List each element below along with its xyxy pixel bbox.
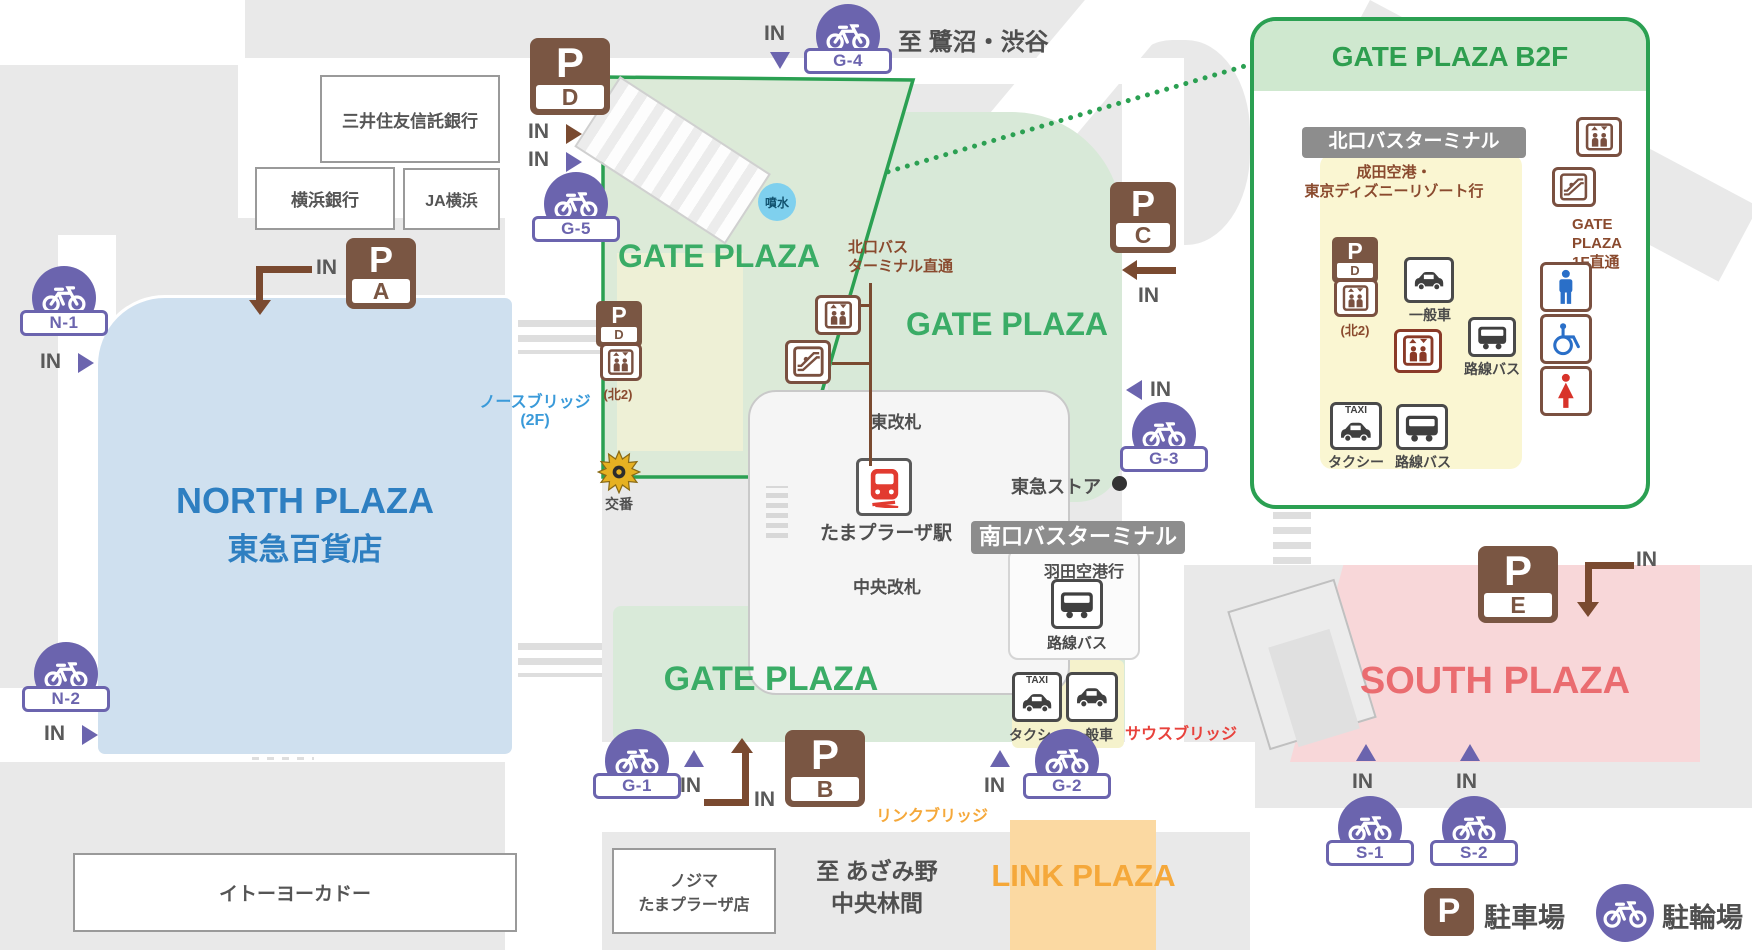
in-label-n2: IN [44,722,65,746]
legend-parking-label: 駐車場 [1484,896,1565,935]
inset-general-car-label: 一般車 [1401,305,1459,325]
building-nojima: ノジマ たまプラーザ店 [612,848,776,934]
route-bus-label: 路線バス [1039,632,1115,653]
in-label-pb: IN [754,788,775,812]
arrow-right-brown-pd [566,124,582,144]
route-line-vertical [869,283,872,466]
arrow-up-purple-s2 [1460,744,1480,761]
inset-route-bus-label: 路線バス [1454,359,1530,379]
parking-p-icon: P [1116,185,1170,223]
bike-lot-label: S-1 [1326,840,1414,866]
bike-lot-label: G-4 [804,48,892,74]
taxi-icon: TAXI [1012,672,1062,722]
arrow-bar-pa-v [256,266,263,302]
bus-icon [1468,317,1516,357]
female-restroom-icon [1540,366,1592,416]
inset-destination-label: 成田空港・ 東京ディズニーリゾート行 [1270,163,1518,201]
taxi-icon: TAXI [1330,402,1382,450]
in-label-g5: IN [528,148,549,172]
bike-lot-badge-n1: N-1 [20,266,108,336]
escalator-icon [1552,167,1596,207]
direction-azamino: 至 あざみ野 中央林間 [793,855,961,919]
arrow-left-purple-g3 [1126,380,1142,400]
inset-taxi-label: タクシー [1324,452,1388,472]
police-badge-icon [597,450,641,492]
legend-parking-icon: P [1424,888,1474,936]
tama-plaza-station-area-map: 噴水 NORTH PLAZA 東急百貨店 SOUTH PLAZA 三井住友信託銀… [0,0,1752,950]
arrow-down-brown-pe [1577,602,1599,617]
legend-bicycle-icon [1596,884,1654,942]
route-line-h2 [832,362,870,365]
escalator-icon [785,340,831,384]
parking-p-icon: P [536,41,604,85]
bike-lot-label: G-5 [532,216,620,242]
inset-parking-sign-d: P D [1332,237,1378,283]
in-label-n1: IN [40,350,61,374]
north-plaza-title: NORTH PLAZA [95,480,515,522]
inset-north-bus-terminal-label: 北口バスターミナル [1302,127,1526,158]
bike-lot-label: N-2 [22,686,110,712]
taxi-sign-text: TAXI [1026,675,1048,686]
arrow-bar-pc [1136,267,1176,274]
arrow-down-purple-g4 [770,52,790,69]
bike-lot-badge-s2: S-2 [1430,796,1518,866]
in-label-g4: IN [764,22,785,46]
arrow-down-brown-pa [249,300,271,315]
tokyu-store-dot [1112,476,1127,491]
in-label-g3: IN [1150,378,1171,402]
in-label-g1: IN [680,774,701,798]
station-central-gate-label: 中央改札 [842,573,932,598]
parking-p-icon: P [791,733,859,777]
arrow-right-purple-g5 [566,152,582,172]
inset-title: GATE PLAZA B2F [1254,41,1646,73]
bike-lot-badge-g3: G-3 [1120,402,1208,472]
parking-p-icon: P [1484,549,1552,593]
parking-p-icon: P [601,303,637,327]
bike-lot-badge-g1: G-1 [593,729,681,799]
south-bus-terminal-label: 南口バスターミナル [971,521,1185,554]
station-east-gate-label: 東改札 [856,408,936,433]
arrow-up-purple-g2 [990,750,1010,767]
parking-p-icon: P [352,241,410,279]
in-label-s1: IN [1352,770,1373,794]
general-car-icon [1066,672,1118,722]
tokyu-store-label: 東急ストア [1002,473,1110,499]
parking-lot-letter: C [1116,223,1170,247]
train-station-icon [856,458,912,516]
arrow-bar-pe-h [1590,562,1634,569]
south-plaza-title: SOUTH PLAZA [1290,660,1700,703]
link-plaza-title: LINK PLAZA [966,858,1201,894]
parking-sign-b: P B [785,730,865,807]
inset-kita2-label: (北2) [1328,320,1382,339]
arrow-bar-pb-v [742,750,749,806]
arrow-bar-pa-h [256,266,312,273]
arrow-bar-pb-h [704,799,749,806]
bus-icon [1051,579,1103,629]
elevator-icon [815,295,861,335]
station-name-label: たまプラーザ駅 [812,518,960,545]
legend-bike-parking-label: 駐輪場 [1662,896,1743,935]
bike-lot-badge-n2: N-2 [22,642,110,712]
arrow-up-purple-s1 [1356,744,1376,761]
bike-lot-label: G-2 [1023,773,1111,799]
elevator-icon [1334,279,1378,317]
bike-lot-badge-g5: G-5 [532,172,620,242]
parking-sign-e: P E [1478,546,1558,623]
arrow-left-brown-pc [1122,260,1137,280]
gate-plaza-title-east: GATE PLAZA [897,306,1117,343]
bike-lot-label: G-3 [1120,446,1208,472]
bike-lot-label: N-1 [20,310,108,336]
parking-p-icon: P [1337,239,1373,263]
link-bridge-label: リンクブリッジ [876,802,1016,826]
in-label-g2: IN [984,774,1005,798]
north-plaza-subtitle: 東急百貨店 [95,524,515,569]
south-bridge-label: サウスブリッジ [1125,720,1255,744]
parking-lot-letter: D [1337,263,1373,278]
inset-gate-plaza-b2f: GATE PLAZA B2F 北口バスターミナル 成田空港・ 東京ディズニーリゾ… [1250,17,1650,509]
elevator-icon [1394,329,1442,373]
in-label-pd: IN [528,120,549,144]
in-label-pa: IN [316,256,337,280]
parking-lot-letter: D [601,327,637,342]
bike-lot-label: G-1 [593,773,681,799]
in-label-pc: IN [1138,284,1159,308]
building-ito-yokado: イトーヨーカドー [73,853,517,932]
parking-lot-letter: B [791,777,859,801]
direction-saginuma-shibuya: 至 鷺沼・渋谷 [898,22,1049,57]
in-label-s2: IN [1456,770,1477,794]
elevator-icon [600,343,642,381]
arrow-right-purple-n1 [78,353,94,373]
north-bus-direct-label: 北口バス ターミナル直通 [848,238,978,276]
gate-plaza-title-north: GATE PLAZA [608,238,830,275]
inset-route-bus-label2: 路線バス [1390,452,1456,472]
parking-sign-c: P C [1110,182,1176,253]
parking-lot-letter: A [352,279,410,303]
bike-lot-badge-g4: G-4 [804,4,892,74]
north-bridge-label: ノースブリッジ (2F) [468,388,602,430]
arrow-up-purple-g1 [684,750,704,767]
gate-plaza-title-south: GATE PLAZA [658,660,884,699]
elevator-icon [1576,117,1622,157]
bike-lot-badge-g2: G-2 [1023,729,1111,799]
arrow-right-purple-n2 [82,725,98,745]
arrow-bar-pe-v [1585,562,1592,604]
parking-lot-letter: D [536,85,604,109]
general-car-icon [1404,257,1454,303]
taxi-sign-text: TAXI [1345,405,1367,416]
parking-sign-a: P A [346,238,416,309]
bus-icon [1396,404,1448,450]
station-platform-hatch-west [766,486,788,538]
fountain-icon: 噴水 [758,183,796,221]
building-ja-yokohama: JA横浜 [403,168,500,230]
bike-lot-label: S-2 [1430,840,1518,866]
wheelchair-accessible-icon [1540,314,1592,364]
bike-lot-badge-s1: S-1 [1326,796,1414,866]
building-yokohama-bank: 横浜銀行 [255,167,395,230]
parking-sign-d-small: P D [596,301,642,347]
male-restroom-icon [1540,262,1592,312]
police-box-label: 交番 [593,494,645,514]
parking-lot-letter: E [1484,593,1552,617]
in-label-pe: IN [1636,548,1657,572]
fountain-label: 噴水 [765,194,789,211]
parking-sign-d: P D [530,38,610,115]
building-smbc-trust-bank: 三井住友信託銀行 [320,75,500,163]
